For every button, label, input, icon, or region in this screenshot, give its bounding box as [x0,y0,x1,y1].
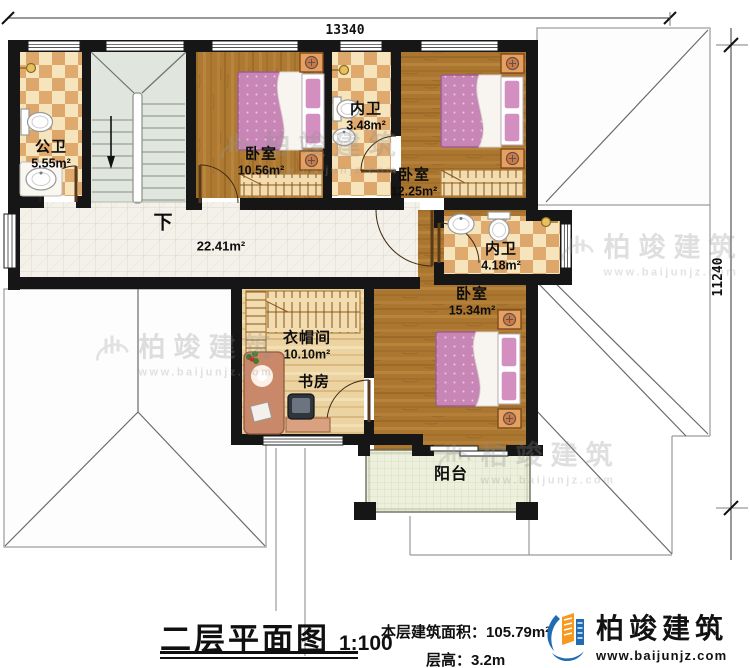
floor-plan-canvas: 13340 11240 柏竣建筑 www.baijunjz.com 柏竣建筑 w… [0,0,750,668]
window-top-5 [421,41,498,51]
brand-name: 柏竣建筑 [596,607,728,647]
window-study-bottom [263,436,343,445]
balcony-post-top [358,444,370,456]
wardrobe-bedroom-top [240,174,322,196]
wardrobe-bedroom-right [441,170,523,196]
nightstand [501,149,524,168]
title-underline-thin [160,657,358,659]
nightstand [300,53,323,72]
dim-height-label: 11240 [711,257,726,296]
window-bath-right [561,224,571,268]
nightstand [498,310,521,329]
dim-width-label: 13340 [325,23,364,38]
balcony-post-right [516,502,538,520]
towel-hook [340,66,349,75]
basin [20,162,62,196]
sink [333,129,355,146]
stair-center-rail [133,93,142,203]
window-top-1 [28,41,80,51]
dimension-right: 11240 [711,28,748,560]
toilet [488,212,510,241]
floor-area-row: 本层建筑面积：105.79m² [381,621,550,642]
window-top-4 [340,41,382,51]
brand-website: www.baijunjz.com [596,648,728,663]
balcony-floor [366,450,530,512]
window-top-3 [212,41,298,51]
floor-height-row: 层高：3.2m [381,649,550,668]
plan-info: 本层建筑面积：105.79m² 层高：3.2m [381,621,550,668]
window-hall-left [4,214,16,268]
brand-logo-icon [542,606,588,664]
balcony-post-left [354,502,376,520]
towel-hook [542,218,551,227]
hall-floor [20,202,420,277]
wardrobe-cloakroom-left [246,291,266,361]
window-top-2 [106,41,184,51]
plan-drawing: 13340 11240 [0,0,750,668]
nightstand [498,409,521,428]
sink [448,214,474,234]
towel-hook [27,64,36,73]
nightstand [300,151,323,170]
nightstand [501,54,524,73]
side-table [286,418,330,432]
title-underline-thick [160,651,358,654]
brand-logo: 柏竣建筑 www.baijunjz.com [542,606,728,664]
